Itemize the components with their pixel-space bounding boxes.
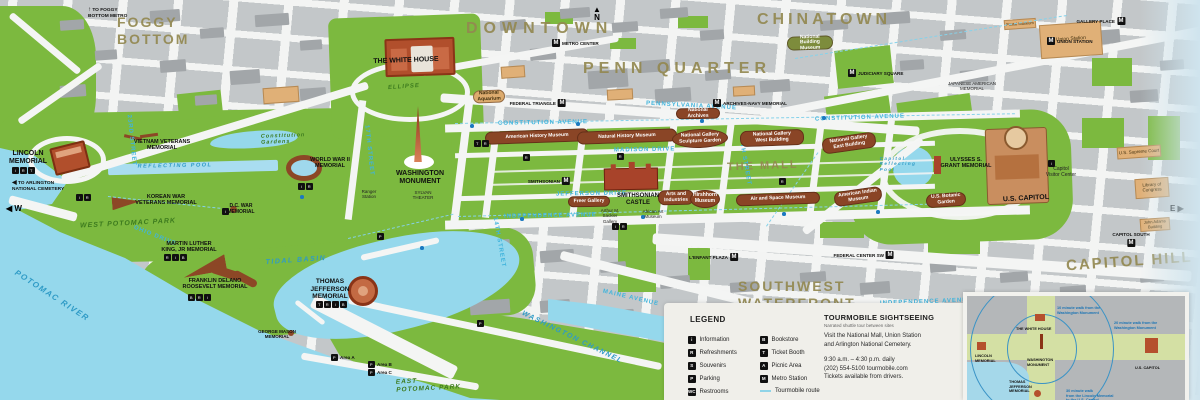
legend-picnic-area-icon: A bbox=[760, 362, 768, 370]
park-label: Constitution Gardens bbox=[261, 132, 306, 147]
note-text: TO ARLINGTON NATIONAL CEMETERY bbox=[12, 181, 64, 192]
metro-station: L'ENFANT PLAZAM bbox=[689, 253, 738, 261]
amenity-facility-icon: R bbox=[306, 183, 313, 190]
tourmobile-stop-dot bbox=[822, 116, 826, 120]
tan-building bbox=[607, 88, 634, 100]
city-building bbox=[860, 281, 891, 295]
memorial-label: Arthur M. Sackler Gallery bbox=[601, 208, 620, 224]
memorial-label: VIETNAM VETERANS MEMORIAL bbox=[134, 139, 190, 152]
parking-area-label: Area B bbox=[377, 362, 392, 367]
map-note: ◀ TO ARLINGTON NATIONAL CEMETERY bbox=[12, 180, 64, 193]
legend-item: TTicket Booth bbox=[760, 349, 805, 357]
metro-icon: M bbox=[848, 69, 856, 77]
metro-station: GALLERY PLACEM bbox=[1076, 17, 1125, 25]
memorial-label: KOREAN WAR VETERANS MEMORIAL bbox=[135, 194, 196, 207]
metro-station: MMETRO CENTER bbox=[552, 39, 599, 47]
amenity-facility-icon: R bbox=[20, 167, 27, 174]
legend-title: LEGEND bbox=[690, 315, 726, 324]
tourmobile-stop-dot bbox=[300, 195, 304, 199]
legend-item: MMetro Station bbox=[760, 375, 807, 383]
inset-capitol-icon bbox=[1145, 338, 1158, 353]
amenity-facility-icon: i bbox=[204, 294, 211, 301]
memorial-label: WORLD WAR II MEMORIAL bbox=[310, 157, 350, 170]
green-patch bbox=[1082, 118, 1124, 148]
memorial-label: JAPANESE AMERICAN MEMORIAL bbox=[948, 81, 996, 92]
legend-item: RRefreshments bbox=[688, 349, 737, 357]
tourmobile-stop-dot bbox=[700, 119, 704, 123]
amenity-facility-icon: T bbox=[474, 140, 481, 147]
museum-label: Hirshhorn Museum bbox=[690, 190, 720, 208]
district-label: DOWNTOWN bbox=[466, 20, 613, 39]
west-label: W bbox=[14, 204, 22, 213]
memorial-label: THOMAS JEFFERSON MEMORIAL bbox=[310, 278, 349, 301]
water-label: REFLECTING POOL bbox=[138, 162, 213, 170]
legend-item-label: Information bbox=[700, 337, 730, 343]
metro-station: MJUDICIARY SQUARE bbox=[848, 69, 903, 77]
tourmobile-stop-dot bbox=[470, 124, 474, 128]
memorial-label: LINCOLN MEMORIAL bbox=[9, 150, 47, 167]
note-arrow-icon: ↑ bbox=[88, 7, 91, 13]
amenity-facility-icon: i bbox=[12, 167, 19, 174]
amenity-facility-icon: R bbox=[84, 194, 91, 201]
amenity-facility-icon: R bbox=[617, 153, 624, 160]
tan-building bbox=[733, 85, 755, 96]
city-building bbox=[1130, 89, 1159, 103]
legend-restrooms-icon: WC bbox=[688, 388, 696, 396]
inset-label: THOMAS JEFFERSON MEMORIAL bbox=[1009, 380, 1032, 394]
legend-item-label: Picnic Area bbox=[772, 363, 802, 369]
city-building bbox=[700, 29, 725, 41]
museum-label: National Gallery West Building bbox=[740, 129, 805, 147]
district-label: CHINATOWN bbox=[757, 11, 891, 30]
amenity-facility-icon: R bbox=[164, 254, 171, 261]
legend-item-label: Restrooms bbox=[700, 389, 729, 395]
city-building bbox=[560, 7, 591, 19]
memorial-label: ULYSSES S. GRANT MEMORIAL bbox=[940, 157, 991, 170]
museum-label: National Building Museum bbox=[787, 35, 833, 51]
inset-monument-icon bbox=[1040, 334, 1043, 349]
note-text: TO FOGGY BOTTOM METRO bbox=[88, 8, 127, 19]
tourmobile-stop-dot bbox=[420, 246, 424, 250]
memorial-label: Capitol Visitor Center bbox=[1046, 167, 1076, 179]
metro-station-label: L'ENFANT PLAZA bbox=[689, 255, 728, 260]
museum-label: National Archives bbox=[676, 107, 720, 119]
north-label: N bbox=[593, 14, 601, 22]
national-mall-map: ▲ N ◀ W E ▶ LEGEND iInformationRRefreshm… bbox=[0, 0, 1200, 400]
metro-station-label: FEDERAL CENTER SW bbox=[834, 253, 884, 258]
inset-white-house-icon bbox=[1035, 314, 1045, 321]
memorial-label: D.C. WAR MEMORIAL bbox=[227, 204, 254, 216]
metro-icon: M bbox=[552, 39, 560, 47]
metro-station: FEDERAL CENTER SWM bbox=[834, 251, 894, 259]
legend-item-label: Bookstore bbox=[772, 337, 799, 343]
city-building bbox=[200, 27, 225, 39]
amenity-facility-icon: T bbox=[28, 167, 35, 174]
metro-station: MARCHIVES-NAVY MEMORIAL bbox=[713, 99, 787, 107]
map-note: ↑ TO FOGGY BOTTOM METRO bbox=[88, 7, 127, 20]
legend-item: Tourmobile route bbox=[760, 388, 820, 394]
water-label: Capitol Reflecting Pool bbox=[880, 156, 917, 172]
amenity-parking-icon: PArea B bbox=[368, 361, 375, 368]
amenity-facility-icon: T bbox=[316, 301, 323, 308]
metro-station-label: METRO CENTER bbox=[562, 41, 599, 46]
metro-icon: M bbox=[1047, 37, 1055, 45]
amenity-facility-icon: i bbox=[1048, 160, 1055, 167]
museum-label: U.S. Botanic Garden bbox=[926, 192, 967, 209]
tan-building: Library of Congress bbox=[1134, 177, 1169, 199]
jefferson-memorial-building bbox=[348, 276, 378, 306]
legend-item-label: Souvenirs bbox=[700, 363, 727, 369]
metro-icon: M bbox=[1127, 239, 1135, 247]
city-building bbox=[255, 13, 290, 27]
metro-station-label: ARCHIVES-NAVY MEMORIAL bbox=[723, 101, 787, 106]
metro-icon: M bbox=[558, 99, 566, 107]
museum-label: Freer Gallery bbox=[568, 195, 610, 207]
metro-station-label: GALLERY PLACE bbox=[1076, 19, 1115, 24]
legend-item-label: Metro Station bbox=[772, 376, 808, 382]
amenity-facility-icon: B bbox=[180, 254, 187, 261]
amenity-parking-icon: P bbox=[477, 320, 484, 327]
tan-building: John Adams Building bbox=[1140, 216, 1171, 231]
metro-station-label: FEDERAL TRIANGLE bbox=[510, 101, 556, 106]
legend-ticket-booth-icon: T bbox=[760, 349, 768, 357]
tan-building bbox=[262, 86, 299, 104]
us-capitol-dome bbox=[1004, 126, 1028, 150]
memorial-label: Ranger Station bbox=[362, 189, 377, 200]
compass-north: ▲ N bbox=[593, 6, 601, 22]
amenity-facility-icon: R bbox=[196, 294, 203, 301]
legend-item: WCRestrooms bbox=[688, 388, 729, 396]
memorial-label: GEORGE MASON MEMORIAL bbox=[258, 329, 296, 340]
amenity-facility-icon: B bbox=[188, 294, 195, 301]
metro-station: FEDERAL TRIANGLEM bbox=[510, 99, 566, 107]
tourmobile-stop-dot bbox=[520, 217, 524, 221]
legend-parking-icon: P bbox=[688, 375, 696, 383]
memorial-label: FRANKLIN DELANO ROOSEVELT MEMORIAL bbox=[183, 278, 248, 291]
metro-icon: M bbox=[730, 253, 738, 261]
note-arrow-icon: ◀ bbox=[12, 180, 17, 186]
legend-metro-station-icon: M bbox=[760, 375, 768, 383]
legend-item: APicnic Area bbox=[760, 362, 802, 370]
legend-information-icon: i bbox=[688, 336, 696, 344]
amenity-facility-icon: R bbox=[620, 223, 627, 230]
west-edge-marker: ◀ W bbox=[6, 204, 22, 213]
amenity-facility-icon: i bbox=[76, 194, 83, 201]
amenity-facility-icon: i bbox=[332, 301, 339, 308]
tan-building bbox=[501, 65, 526, 79]
tourmobile-stop-dot bbox=[876, 210, 880, 214]
tourmobile-details: 9:30 a.m. – 4:30 p.m. daily (202) 554-51… bbox=[824, 356, 908, 382]
metro-station-label: CAPITOL SOUTH bbox=[1112, 232, 1149, 237]
city-building bbox=[60, 19, 85, 31]
amenity-parking-icon: PArea A bbox=[331, 354, 338, 361]
amenity-facility-icon: R bbox=[324, 301, 331, 308]
legend-tourmobile-route-icon bbox=[760, 390, 771, 392]
inset-map: THE WHITE HOUSEWASHINGTON MONUMENTLINCOL… bbox=[967, 296, 1185, 400]
amenity-facility-icon: R bbox=[482, 140, 489, 147]
amenity-facility-icon: i bbox=[612, 223, 619, 230]
amenity-facility-icon: i bbox=[222, 208, 229, 215]
tourmobile-description: Visit the National Mall, Union Station a… bbox=[824, 332, 921, 349]
legend-item-label: Parking bbox=[700, 376, 720, 382]
green-patch bbox=[820, 222, 864, 238]
metro-station-label: JUDICIARY SQUARE bbox=[858, 71, 903, 76]
city-building bbox=[1000, 271, 1029, 283]
smithsonian-castle-building bbox=[604, 168, 658, 191]
east-label: E bbox=[1170, 204, 1175, 213]
city-building bbox=[612, 21, 639, 33]
metro-station: CAPITOL SOUTHM bbox=[1112, 232, 1149, 247]
inset-jefferson-icon bbox=[1034, 390, 1041, 397]
tourmobile-stop-dot bbox=[782, 212, 786, 216]
city-building bbox=[660, 7, 689, 19]
legend-item: BBookstore bbox=[760, 336, 799, 344]
memorial-label: African Art Museum bbox=[643, 209, 664, 220]
judiciary-square-green bbox=[834, 45, 894, 89]
district-label: FOGGY BOTTOM bbox=[117, 14, 189, 47]
museum-label: Arts and Industries bbox=[658, 189, 694, 205]
tourmobile-stop-dot bbox=[576, 122, 580, 126]
east-edge-marker: E ▶ bbox=[1170, 204, 1184, 213]
city-building bbox=[195, 94, 218, 106]
metro-icon: M bbox=[562, 177, 570, 185]
city-building bbox=[300, 39, 323, 51]
legend-item: PParking bbox=[688, 375, 720, 383]
legend-item: iInformation bbox=[688, 336, 730, 344]
inset-map-panel: THE WHITE HOUSEWASHINGTON MONUMENTLINCOL… bbox=[963, 292, 1189, 400]
green-patch bbox=[678, 16, 708, 28]
parking-area-label: Area C bbox=[377, 370, 392, 375]
green-patch bbox=[1092, 58, 1132, 86]
tourmobile-subtitle: Narrated shuttle tour between sites bbox=[824, 323, 894, 328]
metro-station-label: SMITHSONIAN bbox=[528, 179, 560, 184]
legend-item: SSouvenirs bbox=[688, 362, 726, 370]
legend-item-label: Ticket Booth bbox=[772, 350, 805, 356]
memorial-label: WASHINGTON MONUMENT bbox=[396, 170, 444, 187]
legend-refreshments-icon: R bbox=[688, 349, 696, 357]
museum-label: Natural History Museum bbox=[577, 128, 677, 144]
district-label: THE MALL bbox=[727, 159, 799, 174]
legend-item-label: Tourmobile route bbox=[775, 388, 820, 394]
amenity-facility-icon: i bbox=[172, 254, 179, 261]
inset-label: 20 minute walk from the Washington Monum… bbox=[1114, 321, 1157, 330]
metro-icon: M bbox=[886, 251, 894, 259]
district-label: PENN QUARTER bbox=[583, 60, 771, 79]
legend-bookstore-icon: B bbox=[760, 336, 768, 344]
green-patch bbox=[928, 238, 980, 254]
parking-area-label: Area A bbox=[340, 355, 355, 360]
inset-label: 10 minute walk from the Washington Monum… bbox=[1057, 306, 1100, 315]
metro-icon: M bbox=[1117, 17, 1125, 25]
legend-item-label: Refreshments bbox=[700, 350, 737, 356]
inset-label: LINCOLN MEMORIAL bbox=[975, 354, 996, 363]
tourmobile-title: TOURMOBILE SIGHTSEEING bbox=[824, 313, 934, 322]
memorial-label: SYLVAN THEATER bbox=[413, 190, 434, 201]
amenity-facility-icon: R bbox=[779, 178, 786, 185]
memorial-label: MARTIN LUTHER KING, JR MEMORIAL bbox=[161, 241, 216, 254]
inset-lincoln-icon bbox=[977, 342, 986, 350]
legend-panel: LEGEND iInformationRRefreshmentsSSouveni… bbox=[664, 303, 964, 400]
amenity-facility-icon: R bbox=[523, 154, 530, 161]
inset-label: THE WHITE HOUSE bbox=[1016, 327, 1051, 332]
amenity-parking-icon: PArea C bbox=[368, 369, 375, 376]
amenity-facility-icon: B bbox=[340, 301, 347, 308]
metro-station: MUNION STATION bbox=[1047, 37, 1093, 45]
inset-label: U.S. CAPITOL bbox=[1135, 366, 1160, 371]
city-building bbox=[160, 59, 187, 73]
inset-label: 30 minute walk from the Lincoln Memorial… bbox=[1066, 389, 1113, 400]
metro-station-label: UNION STATION bbox=[1057, 39, 1093, 44]
amenity-facility-icon: i bbox=[298, 183, 305, 190]
city-building bbox=[760, 79, 791, 93]
metro-icon: M bbox=[713, 99, 721, 107]
city-building bbox=[230, 69, 261, 85]
city-building bbox=[95, 49, 118, 61]
city-building bbox=[1160, 59, 1185, 71]
inset-label: WASHINGTON MONUMENT bbox=[1027, 358, 1053, 367]
metro-station: SMITHSONIANM bbox=[528, 177, 570, 185]
legend-souvenirs-icon: S bbox=[688, 362, 696, 370]
amenity-parking-icon: P bbox=[377, 233, 384, 240]
memorial-label: SMITHSONIAN CASTLE bbox=[617, 193, 659, 207]
museum-label: National Aquarium bbox=[473, 89, 505, 103]
